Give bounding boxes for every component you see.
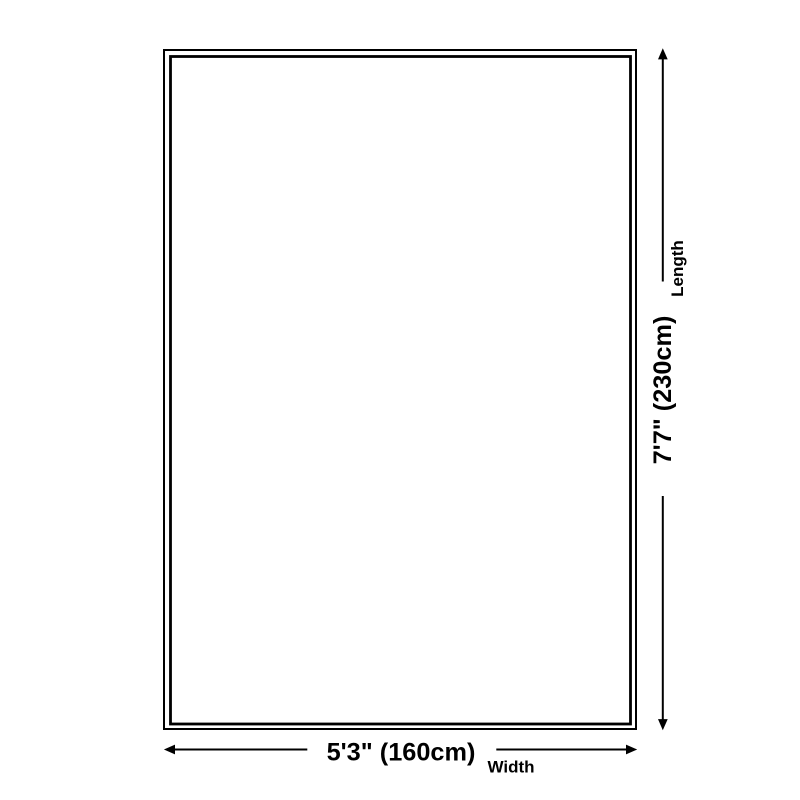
- svg-text:5'3" (160cm): 5'3" (160cm): [327, 739, 476, 767]
- svg-text:Length: Length: [668, 240, 687, 297]
- svg-text:7'7" (230cm): 7'7" (230cm): [649, 316, 677, 465]
- svg-text:Width: Width: [488, 757, 535, 776]
